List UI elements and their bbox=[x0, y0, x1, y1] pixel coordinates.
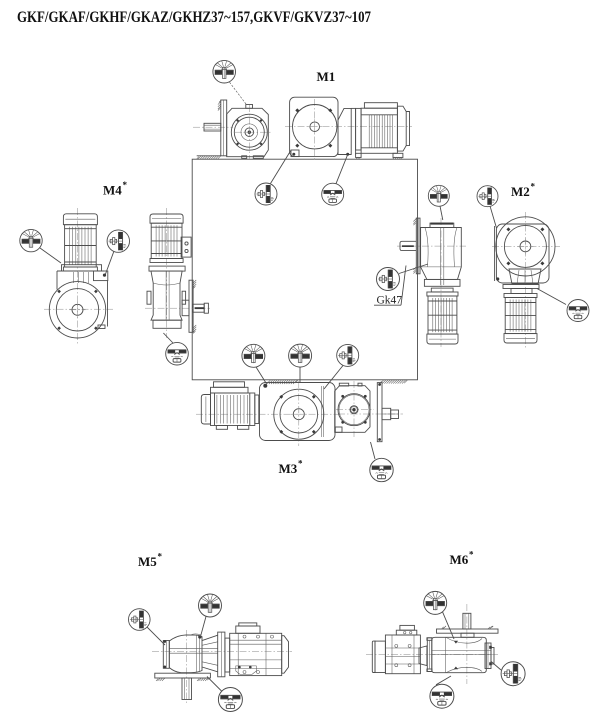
svg-text:M3: M3 bbox=[279, 461, 298, 476]
svg-text:*: * bbox=[531, 182, 536, 192]
svg-text:M5: M5 bbox=[138, 554, 157, 569]
svg-text:M4: M4 bbox=[103, 183, 122, 198]
svg-text:M1: M1 bbox=[317, 69, 336, 84]
svg-text:*: * bbox=[298, 459, 303, 469]
svg-text:M6: M6 bbox=[450, 552, 469, 567]
svg-text:*: * bbox=[158, 552, 163, 562]
svg-text:*: * bbox=[469, 550, 474, 560]
svg-text:M2: M2 bbox=[511, 184, 530, 199]
svg-text:GKF/GKAF/GKHF/GKAZ/GKHZ37~157,: GKF/GKAF/GKHF/GKAZ/GKHZ37~157,GKVF/GKVZ3… bbox=[17, 8, 371, 26]
svg-text:*: * bbox=[123, 180, 128, 190]
svg-text:Gk47: Gk47 bbox=[377, 295, 403, 307]
